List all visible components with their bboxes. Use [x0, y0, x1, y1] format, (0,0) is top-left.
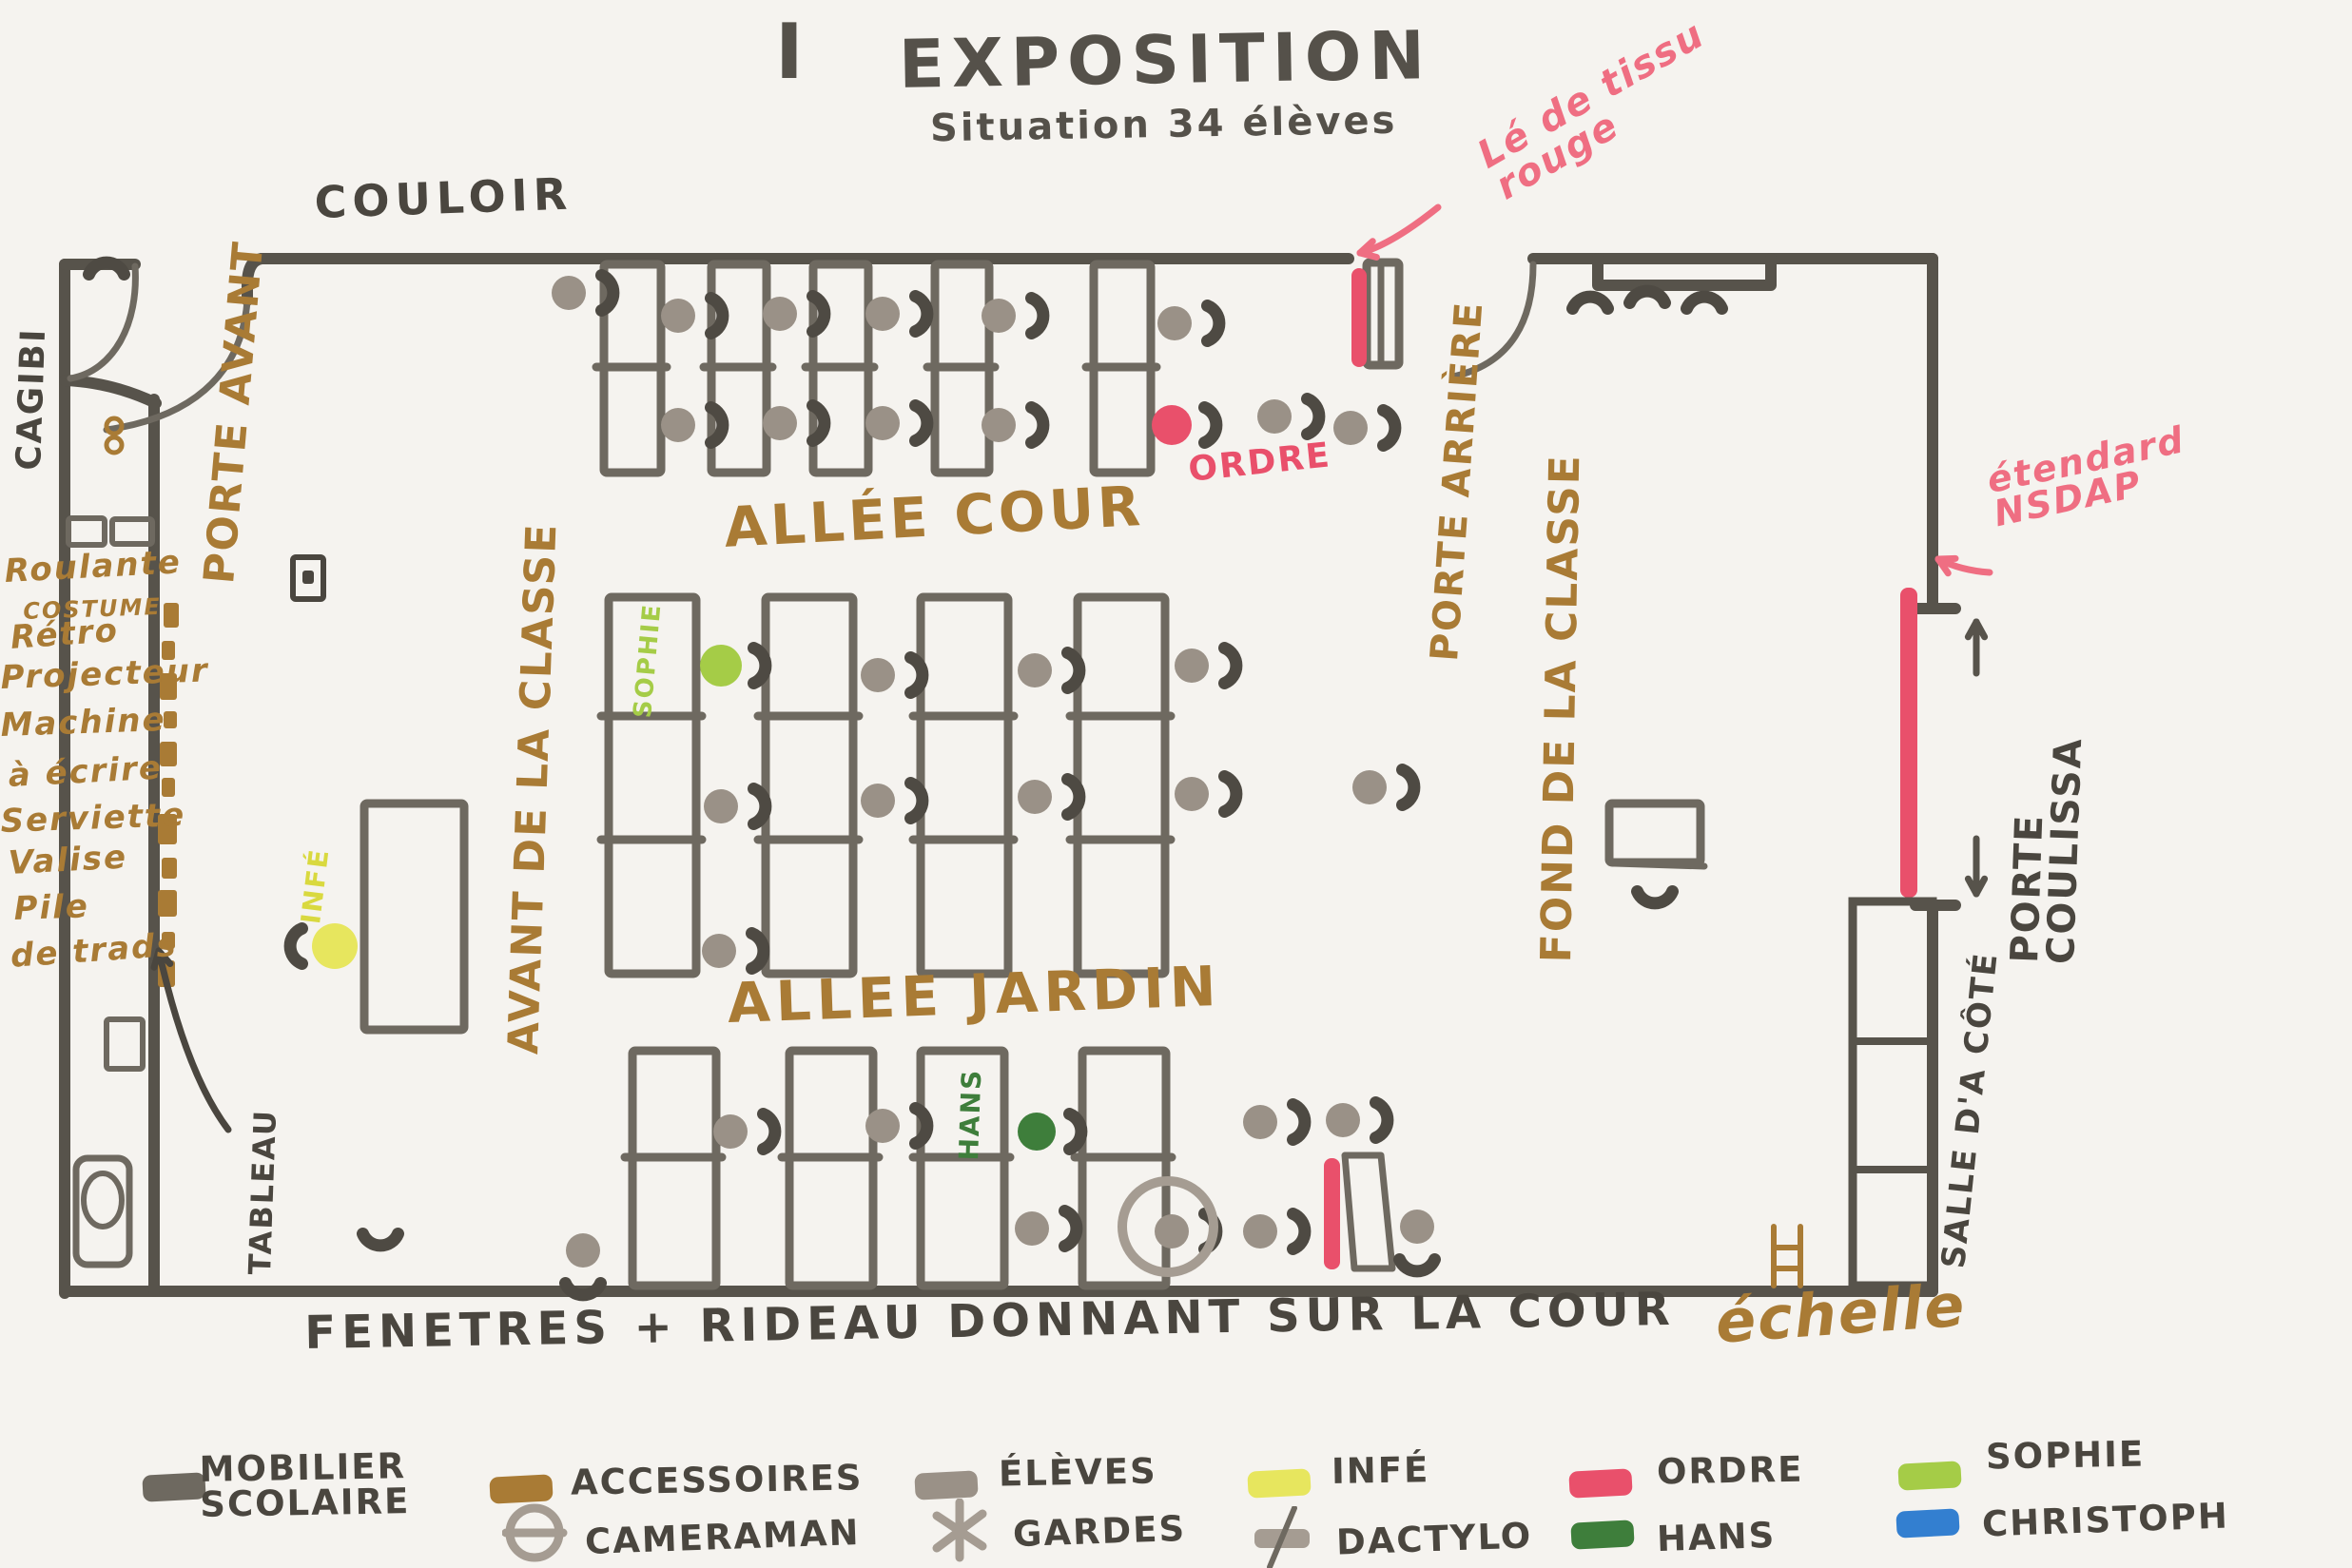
prop-item: [162, 778, 175, 797]
legend-ordre-icon: [1568, 1468, 1632, 1498]
student-dot: [1018, 653, 1052, 687]
student-dot: [1333, 411, 1368, 445]
student-dot: [1257, 399, 1292, 434]
chair-crescent: [911, 784, 923, 819]
side-room: [1853, 901, 1933, 1286]
legend-christoph-icon: [1895, 1508, 1959, 1538]
student-dot: [1243, 1105, 1277, 1139]
student-dot: [704, 789, 738, 823]
label-prop-a-ecrire: à écrire: [8, 753, 164, 792]
empty-chair-crescent: [1687, 297, 1722, 308]
prop-item: [302, 571, 314, 584]
legend-sophie-icon: [1897, 1461, 1961, 1490]
legend-accessoires-icon: [489, 1474, 553, 1503]
chair-crescent: [1068, 653, 1079, 688]
chair-crescent: [1225, 648, 1236, 684]
desk: [789, 1051, 873, 1286]
student-dot: [763, 297, 797, 331]
label-prop-serviette: Serviette: [0, 800, 186, 837]
student-dot: [661, 299, 695, 333]
chair-crescent: [754, 789, 766, 824]
student-dot: [1326, 1103, 1360, 1137]
empty-chair-crescent: [1630, 291, 1665, 302]
prop-item: [162, 858, 177, 879]
chair-crescent: [754, 648, 766, 684]
chair-crescent: [1208, 306, 1219, 341]
student-dot: [552, 276, 586, 310]
student-dot: [1155, 1214, 1189, 1249]
ordre-dot: [1152, 405, 1192, 445]
student-dot: [1015, 1211, 1049, 1246]
chair-crescent: [911, 658, 923, 693]
prop-item: [107, 437, 122, 453]
label-prop-retro: Rétro: [10, 615, 120, 653]
red-marker-bar: [1351, 268, 1367, 367]
legend-ordre-label: ORDRE: [1657, 1452, 1804, 1490]
chair-crescent: [1293, 1214, 1305, 1249]
chair-crescent: [1068, 780, 1079, 815]
label-prop-de-trads: de trads: [10, 930, 179, 972]
chair-crescent: [1065, 1211, 1077, 1247]
student-dot: [1243, 1214, 1277, 1249]
page-subtitle: Situation 34 élèves: [930, 99, 1398, 151]
legend-gardes-label: GARDES: [1012, 1511, 1186, 1552]
legend-dactylo-icon: [1251, 1506, 1319, 1568]
red-marker-bar: [1324, 1158, 1340, 1269]
legend-mobilier-scolaire-icon: [142, 1472, 205, 1501]
chair-crescent: [764, 1114, 775, 1150]
desk: [1078, 597, 1165, 974]
label-fond-de-la-classe: FOND DE LA CLASSE: [1537, 454, 1585, 963]
chair-crescent: [1293, 1105, 1305, 1140]
desk: [364, 803, 464, 1030]
label-prop-pile: Pile: [13, 891, 89, 924]
prop-item: [160, 742, 177, 766]
prop-item: [68, 518, 105, 545]
chair-crescent: [1070, 1114, 1081, 1150]
student-dot: [713, 1114, 748, 1149]
student-dot: [1175, 777, 1209, 811]
student-dot: [865, 406, 900, 440]
chair-crescent: [916, 406, 927, 441]
chair-crescent: [1205, 408, 1216, 443]
student-dot: [1018, 780, 1052, 814]
door-panel: [1345, 1155, 1392, 1268]
student-dot: [566, 1233, 600, 1268]
label-cagibi: CAGIBI: [13, 327, 50, 471]
label-prop-roulante: Roulante: [4, 547, 183, 587]
student-dot: [763, 406, 797, 440]
prop-item: [112, 519, 152, 544]
chair-crescent: [290, 929, 301, 964]
desk: [632, 1051, 716, 1286]
prop-item: [107, 1019, 143, 1069]
title-numeral: I: [775, 8, 804, 96]
chair-crescent: [1308, 399, 1319, 435]
student-dot: [1400, 1210, 1434, 1244]
wall: [65, 380, 156, 403]
door-swing-arc: [70, 266, 135, 378]
legend-sophie-label: SOPHIE: [1986, 1437, 2146, 1475]
sophie-dot: [700, 645, 742, 687]
label-prop-valise: Valise: [8, 842, 128, 879]
legend-hans-icon: [1570, 1520, 1634, 1549]
tissu-arrow-head: [1360, 253, 1376, 258]
label-echelle: échelle: [1714, 1278, 1968, 1351]
legend-accessoires-label: ACCESSOIRES: [571, 1460, 864, 1500]
empty-chair-crescent: [89, 262, 125, 274]
label-allee-jardin: ALLEE JARDIN: [727, 960, 1222, 1030]
empty-chair-crescent: [1638, 892, 1673, 903]
legend-eleves-label: ÉLÈVES: [999, 1454, 1157, 1492]
student-dot: [982, 299, 1016, 333]
label-porte-coulissa: PORTE COULISSA: [2007, 617, 2091, 964]
legend-cameraman-icon: [502, 1500, 571, 1565]
legend-eleves-icon: [914, 1470, 978, 1500]
prop-item: [158, 890, 177, 917]
empty-chair-crescent: [363, 1234, 398, 1246]
label-prop-projecteur: Projecteur: [0, 655, 209, 693]
red-marker-bar: [1900, 588, 1917, 898]
chair-crescent: [752, 934, 764, 969]
legend-christoph-label: CHRISTOPH: [1981, 1498, 2229, 1541]
chair-crescent: [1384, 411, 1395, 446]
legend-infe-label: INFÉ: [1332, 1452, 1430, 1489]
legend-infe-icon: [1247, 1468, 1311, 1498]
prop-item: [164, 603, 179, 628]
chair-crescent: [1403, 770, 1414, 805]
student-dot: [865, 297, 900, 331]
label-prop-machine: Machine: [0, 705, 166, 741]
floor-plan-scan: I EXPOSITION Situation 34 élèves COULOIR…: [0, 0, 2352, 1568]
label-couloir: COULOIR: [314, 174, 573, 224]
student-dot: [702, 934, 736, 968]
chair-crescent: [1400, 1260, 1435, 1271]
sink-bowl: [84, 1173, 122, 1227]
chair-crescent: [1225, 777, 1236, 812]
student-dot: [865, 1109, 900, 1143]
desk: [766, 597, 853, 974]
legend-gardes-icon: [927, 1499, 996, 1563]
chair-crescent: [1032, 408, 1043, 443]
chair-crescent: [916, 297, 927, 332]
chair-crescent: [1032, 299, 1043, 334]
legend-mobilier-scolaire-label: MOBILIER SCOLAIRE: [199, 1448, 410, 1522]
page-title: EXPOSITION: [898, 16, 1432, 104]
legend-hans-label: HANS: [1656, 1518, 1776, 1557]
empty-chair-crescent: [1573, 297, 1608, 308]
chair-crescent: [566, 1284, 601, 1295]
label-tableau: TABLEAU: [245, 1109, 280, 1275]
infe-dot: [312, 923, 358, 969]
student-dot: [1175, 648, 1209, 683]
student-dot: [861, 658, 895, 692]
label-hans-marker: HANS: [957, 1068, 985, 1161]
student-dot: [982, 408, 1016, 442]
legend-cameraman-label: CAMERAMAN: [584, 1515, 861, 1559]
student-dot: [1352, 770, 1387, 804]
chair-crescent: [1376, 1103, 1388, 1138]
student-dot: [861, 784, 895, 818]
legend-dactylo-label: DACTYLO: [1335, 1518, 1532, 1559]
student-dot: [1157, 306, 1192, 340]
desk: [1609, 803, 1701, 862]
desk: [921, 597, 1008, 974]
student-dot: [661, 408, 695, 442]
hans-dot: [1018, 1113, 1056, 1151]
